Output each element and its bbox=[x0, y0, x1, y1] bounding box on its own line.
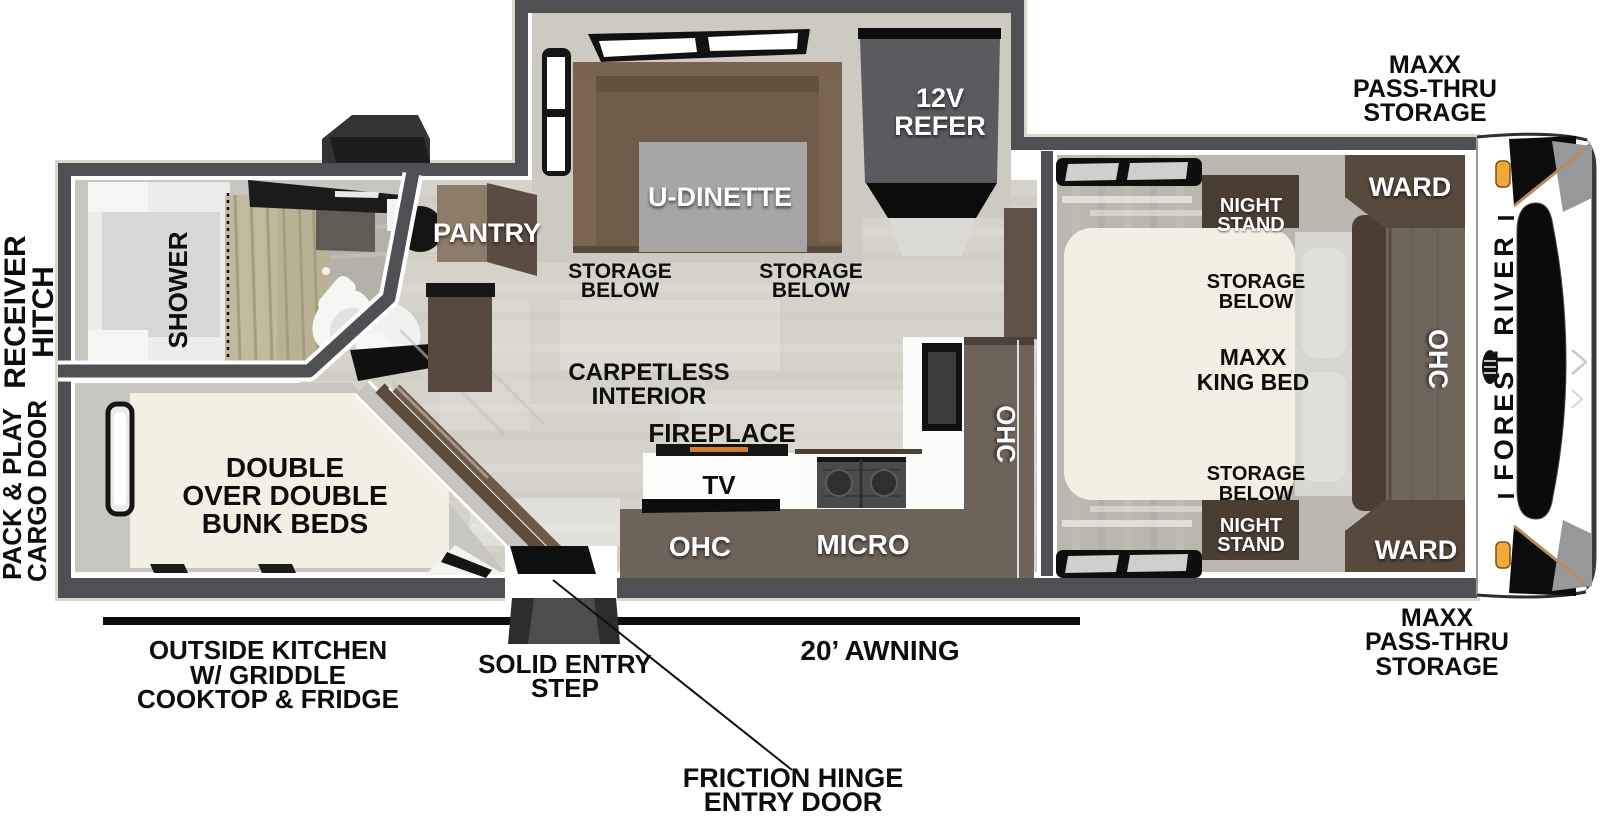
svg-text:CARGO DOOR: CARGO DOOR bbox=[22, 400, 52, 582]
svg-text:MICRO: MICRO bbox=[816, 529, 909, 560]
svg-text:OHC: OHC bbox=[669, 531, 731, 562]
svg-text:BELOW: BELOW bbox=[772, 279, 850, 302]
svg-text:WARD: WARD bbox=[1369, 172, 1452, 202]
svg-text:STAND: STAND bbox=[1217, 534, 1284, 556]
svg-text:PANTRY: PANTRY bbox=[433, 218, 541, 248]
svg-text:MAXX: MAXX bbox=[1220, 344, 1287, 370]
svg-text:CARPETLESS: CARPETLESS bbox=[568, 359, 729, 386]
svg-text:DOUBLE: DOUBLE bbox=[226, 452, 344, 483]
svg-text:STEP: STEP bbox=[531, 673, 599, 703]
svg-text:OHC: OHC bbox=[1423, 329, 1453, 389]
svg-text:PASS-THRU: PASS-THRU bbox=[1365, 628, 1509, 656]
svg-text:BUNK BEDS: BUNK BEDS bbox=[202, 508, 368, 539]
svg-text:OHC: OHC bbox=[991, 405, 1021, 463]
svg-text:SHOWER: SHOWER bbox=[163, 231, 193, 348]
svg-text:STORAGE: STORAGE bbox=[1375, 653, 1498, 681]
svg-text:BELOW: BELOW bbox=[581, 279, 659, 302]
svg-text:12V: 12V bbox=[916, 83, 964, 113]
svg-text:HITCH: HITCH bbox=[27, 266, 60, 358]
svg-text:WARD: WARD bbox=[1375, 535, 1458, 565]
svg-text:20’ AWNING: 20’ AWNING bbox=[800, 635, 959, 666]
svg-text:STORAGE: STORAGE bbox=[1207, 463, 1306, 485]
svg-text:BELOW: BELOW bbox=[1219, 291, 1294, 313]
svg-text:U-DINETTE: U-DINETTE bbox=[648, 182, 792, 212]
svg-text:STORAGE: STORAGE bbox=[1363, 99, 1486, 127]
svg-text:BELOW: BELOW bbox=[1219, 483, 1294, 505]
svg-text:REFER: REFER bbox=[894, 111, 986, 141]
svg-text:ENTRY DOOR: ENTRY DOOR bbox=[704, 787, 883, 817]
svg-text:FIREPLACE: FIREPLACE bbox=[648, 418, 795, 448]
svg-text:KING BED: KING BED bbox=[1197, 369, 1309, 395]
svg-text:INTERIOR: INTERIOR bbox=[592, 383, 707, 410]
svg-text:STORAGE: STORAGE bbox=[1207, 271, 1306, 293]
svg-text:COOKTOP & FRIDGE: COOKTOP & FRIDGE bbox=[137, 684, 399, 714]
svg-text:TV: TV bbox=[702, 470, 736, 500]
svg-text:STAND: STAND bbox=[1217, 214, 1284, 236]
svg-text:OVER DOUBLE: OVER DOUBLE bbox=[182, 480, 387, 511]
